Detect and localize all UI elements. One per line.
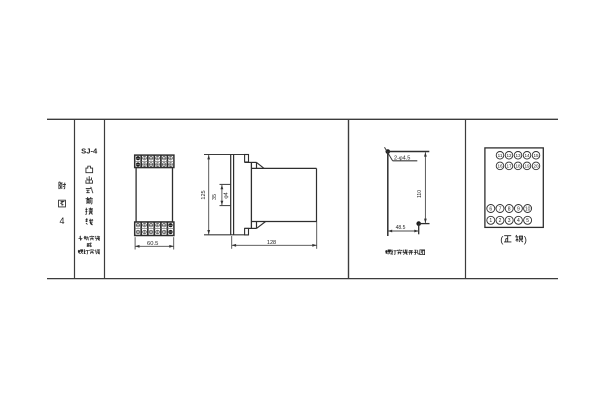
svg-text:17: 17 <box>506 164 512 169</box>
svg-text:3: 3 <box>508 218 511 224</box>
svg-text:φ4: φ4 <box>224 192 230 198</box>
svg-text:11: 11 <box>498 153 503 158</box>
svg-text:9: 9 <box>517 206 520 212</box>
svg-text:125: 125 <box>201 190 207 199</box>
svg-text:4: 4 <box>517 218 520 224</box>
svg-text:2: 2 <box>499 218 502 224</box>
svg-text:12: 12 <box>506 153 512 158</box>
svg-text:6: 6 <box>489 206 492 212</box>
svg-text:15: 15 <box>533 153 539 158</box>
svg-text:128: 128 <box>267 240 276 246</box>
svg-text:10: 10 <box>525 206 531 212</box>
svg-text:SJ-4: SJ-4 <box>81 146 98 155</box>
svg-text:16: 16 <box>497 164 503 169</box>
svg-text:20: 20 <box>533 164 539 169</box>
svg-text:19: 19 <box>524 164 530 169</box>
svg-text:8: 8 <box>508 206 511 212</box>
svg-text:48.5: 48.5 <box>396 225 406 231</box>
svg-text:1: 1 <box>489 218 492 224</box>
svg-text:7: 7 <box>499 206 502 212</box>
svg-text:): ) <box>524 234 527 245</box>
svg-text:4: 4 <box>59 216 64 226</box>
svg-text:13: 13 <box>515 153 521 158</box>
svg-text:18: 18 <box>515 164 521 169</box>
svg-text:14: 14 <box>524 153 530 158</box>
svg-text:(: ( <box>500 234 504 245</box>
svg-text:110: 110 <box>417 190 423 198</box>
svg-text:35: 35 <box>212 194 218 200</box>
svg-text:60.5: 60.5 <box>147 241 158 247</box>
svg-text:2-φ4.5: 2-φ4.5 <box>394 156 410 162</box>
svg-text:5: 5 <box>526 218 529 224</box>
